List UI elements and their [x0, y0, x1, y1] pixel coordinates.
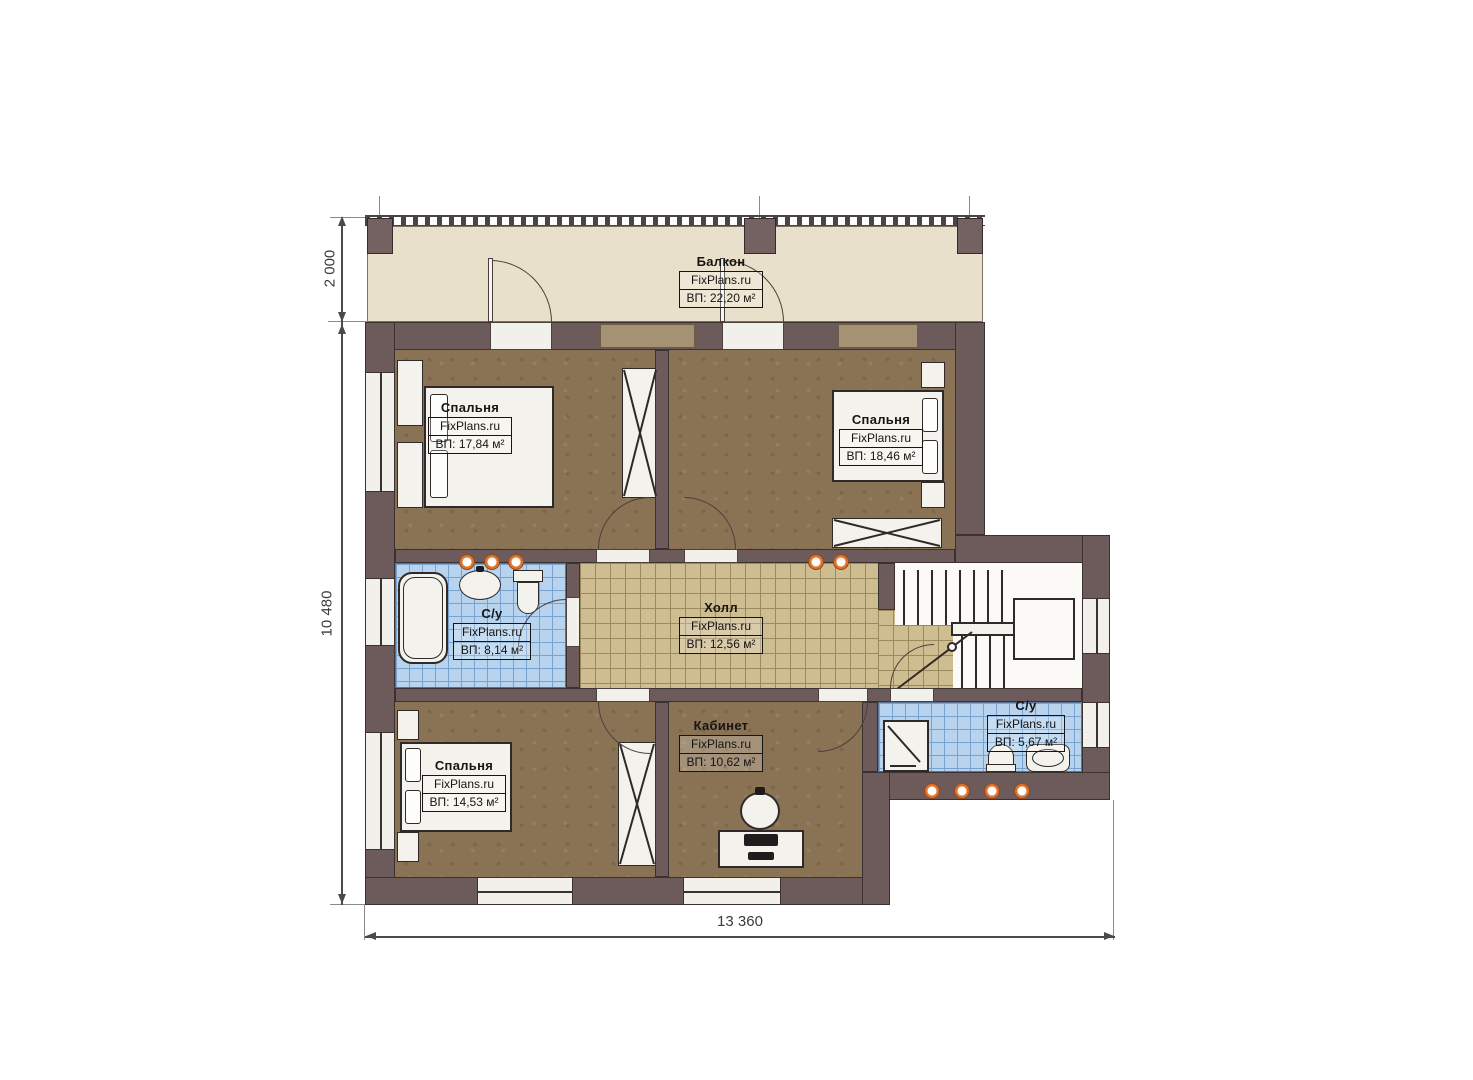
- stair-landing-rail: [951, 622, 1015, 636]
- pillar: [957, 218, 983, 254]
- nightstand: [921, 362, 945, 388]
- room-area: ВП: 18,46 м²: [840, 447, 923, 465]
- stair-treads: [903, 570, 1015, 625]
- stair-treads: [961, 636, 1017, 688]
- ceiling-light: [833, 554, 849, 570]
- room-area: ВП: 22,20 м²: [680, 289, 763, 307]
- exterior-wall: [955, 322, 985, 535]
- wardrobe: [622, 368, 658, 498]
- pillar: [367, 218, 393, 254]
- brand-label: FixPlans.ru: [429, 418, 512, 435]
- dimension-arrow: [338, 324, 346, 334]
- exterior-wall: [862, 772, 890, 905]
- door-opening: [722, 322, 784, 350]
- room-label-box: FixPlans.ru ВП: 14,53 м²: [422, 775, 507, 812]
- dimension-line: [365, 936, 1115, 938]
- room-label-bathroom-left: С/у FixPlans.ru ВП: 8,14 м²: [422, 606, 562, 660]
- window: [683, 877, 781, 905]
- window: [365, 372, 395, 492]
- room-label-box: FixPlans.ru ВП: 10,62 м²: [679, 735, 764, 772]
- room-name: Спальня: [400, 400, 540, 415]
- sink-tap: [476, 566, 484, 572]
- room-area: ВП: 17,84 м²: [429, 435, 512, 453]
- interior-wall: [655, 350, 669, 549]
- interior-wall: [878, 563, 895, 610]
- stairwell-opening: [1013, 598, 1075, 660]
- room-label-bedroom-top-left: Спальня FixPlans.ru ВП: 17,84 м²: [400, 400, 540, 454]
- ceiling-light: [508, 554, 524, 570]
- window: [477, 877, 573, 905]
- extension-line: [330, 217, 368, 218]
- room-area: ВП: 14,53 м²: [423, 793, 506, 811]
- office-chair: [740, 792, 780, 830]
- nightstand: [397, 710, 419, 740]
- room-label-bedroom-top-right: Спальня FixPlans.ru ВП: 18,46 м²: [811, 412, 951, 466]
- room-name: Холл: [651, 600, 791, 615]
- nightstand: [397, 832, 419, 862]
- room-name: Спальня: [811, 412, 951, 427]
- room-label-box: FixPlans.ru ВП: 12,56 м²: [679, 617, 764, 654]
- room-label-office: Кабинет FixPlans.ru ВП: 10,62 м²: [651, 718, 791, 772]
- room-label-box: FixPlans.ru ВП: 22,20 м²: [679, 271, 764, 308]
- room-label-bedroom-bottom-left: Спальня FixPlans.ru ВП: 14,53 м²: [394, 758, 534, 812]
- room-area: ВП: 12,56 м²: [680, 635, 763, 653]
- pillar: [744, 218, 776, 254]
- ceiling-light: [984, 783, 1000, 799]
- ceiling-light: [924, 783, 940, 799]
- brand-label: FixPlans.ru: [680, 736, 763, 753]
- dimension-arrow: [338, 894, 346, 904]
- door-opening: [596, 688, 650, 702]
- pillow: [430, 450, 448, 498]
- wardrobe: [832, 518, 942, 548]
- ceiling-light: [1014, 783, 1030, 799]
- brand-label: FixPlans.ru: [680, 272, 763, 289]
- door-opening: [566, 597, 580, 647]
- balcony-railing: [365, 215, 985, 226]
- dimension-label-left-height: 10 480: [319, 579, 336, 649]
- dimension-line: [341, 322, 343, 905]
- exterior-wall: [365, 877, 890, 905]
- window: [365, 732, 395, 850]
- dimension-line: [341, 219, 343, 322]
- ceiling-light: [954, 783, 970, 799]
- extension-line: [328, 321, 368, 322]
- interior-wall: [395, 549, 955, 563]
- brand-label: FixPlans.ru: [840, 430, 923, 447]
- dimension-arrow: [366, 932, 376, 940]
- door-leaf: [488, 258, 493, 322]
- nightstand: [921, 482, 945, 508]
- shower: [883, 720, 929, 772]
- room-name: Балкон: [651, 254, 791, 269]
- room-name: Спальня: [394, 758, 534, 773]
- door-opening: [890, 688, 934, 702]
- dimension-arrow: [338, 312, 346, 322]
- room-area: ВП: 5,67 м²: [988, 733, 1064, 751]
- dimension-label-balcony-depth: 2 000: [322, 239, 339, 299]
- window: [1082, 598, 1110, 654]
- ceiling-light: [484, 554, 500, 570]
- dimension-label-bottom-width: 13 360: [690, 913, 790, 930]
- brand-label: FixPlans.ru: [454, 624, 530, 641]
- door-opening: [684, 549, 738, 563]
- room-label-balcony: Балкон FixPlans.ru ВП: 22,20 м²: [651, 254, 791, 308]
- room-label-hall: Холл FixPlans.ru ВП: 12,56 м²: [651, 600, 791, 654]
- window: [365, 578, 395, 646]
- keyboard: [748, 852, 774, 860]
- extension-line: [1113, 800, 1114, 940]
- room-label-box: FixPlans.ru ВП: 5,67 м²: [987, 715, 1065, 752]
- door-opening: [818, 688, 868, 702]
- floor-plan-canvas: Балкон FixPlans.ru ВП: 22,20 м² Спальня …: [0, 0, 1473, 1080]
- toilet-tank: [513, 570, 543, 582]
- brand-label: FixPlans.ru: [423, 776, 506, 793]
- exterior-wall: [1082, 535, 1110, 800]
- dimension-arrow: [1104, 932, 1114, 940]
- room-area: ВП: 8,14 м²: [454, 641, 530, 659]
- room-label-box: FixPlans.ru ВП: 18,46 м²: [839, 429, 924, 466]
- toilet-tank: [986, 764, 1016, 772]
- room-label-box: FixPlans.ru ВП: 17,84 м²: [428, 417, 513, 454]
- room-label-box: FixPlans.ru ВП: 8,14 м²: [453, 623, 531, 660]
- room-name: С/у: [956, 698, 1096, 713]
- room-name: С/у: [422, 606, 562, 621]
- brand-label: FixPlans.ru: [680, 618, 763, 635]
- room-name: Кабинет: [651, 718, 791, 733]
- room-label-bathroom-right: С/у FixPlans.ru ВП: 5,67 м²: [956, 698, 1096, 752]
- extension-line: [330, 904, 368, 905]
- ceiling-light: [808, 554, 824, 570]
- balcony-window-sill: [600, 324, 695, 348]
- chair-knob: [755, 787, 765, 795]
- door-opening: [596, 549, 650, 563]
- ceiling-light: [459, 554, 475, 570]
- dimension-arrow: [338, 216, 346, 226]
- monitor: [744, 834, 778, 846]
- balcony-window-sill: [838, 324, 918, 348]
- sink: [459, 570, 501, 600]
- room-area: ВП: 10,62 м²: [680, 753, 763, 771]
- extension-line: [364, 905, 365, 940]
- brand-label: FixPlans.ru: [988, 716, 1064, 733]
- door-opening: [490, 322, 552, 350]
